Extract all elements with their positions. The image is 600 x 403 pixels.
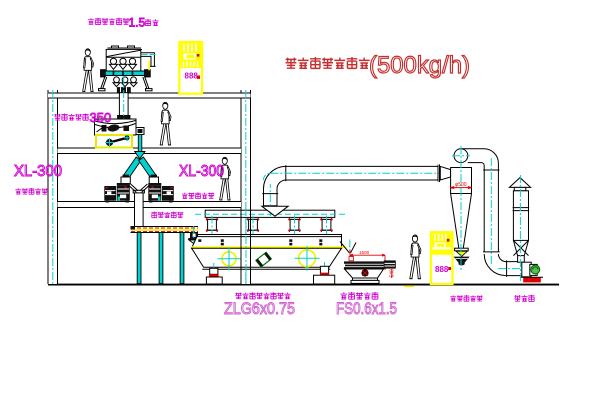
- svg-text:888: 888: [185, 72, 199, 81]
- svg-text:540: 540: [390, 269, 396, 278]
- svg-text:350: 350: [90, 110, 112, 125]
- svg-text:ZLG6x0.75: ZLG6x0.75: [224, 300, 295, 318]
- svg-text:XL-300: XL-300: [14, 163, 62, 180]
- svg-text:XL-300: XL-300: [179, 163, 224, 180]
- svg-text:(500kg/h): (500kg/h): [369, 52, 470, 79]
- svg-text:888: 888: [435, 265, 449, 274]
- svg-text:1500: 1500: [359, 250, 370, 255]
- svg-text:FS0.6x1.5: FS0.6x1.5: [336, 300, 397, 318]
- svg-text:1.5: 1.5: [129, 16, 146, 30]
